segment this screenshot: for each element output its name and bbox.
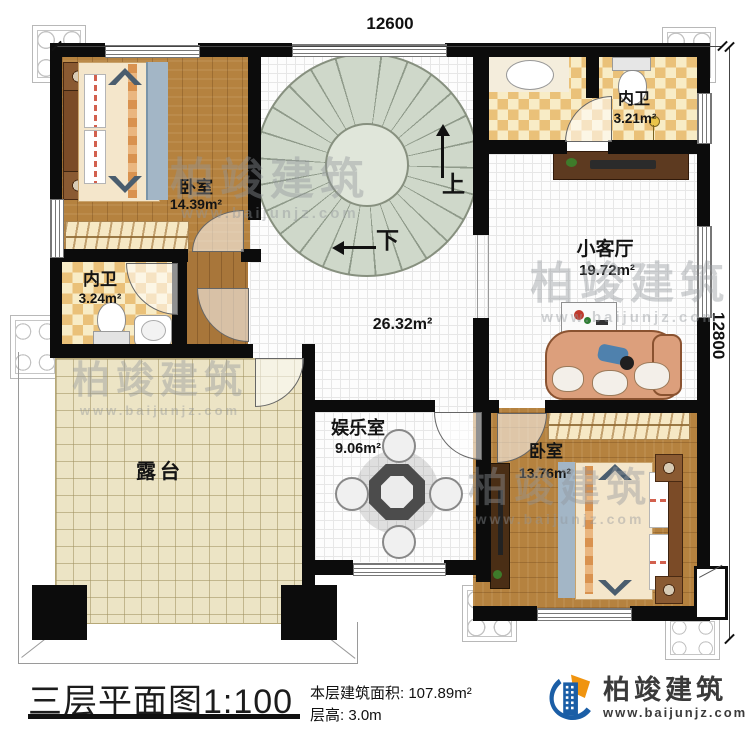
- wall: [608, 140, 697, 154]
- chair: [382, 525, 416, 559]
- dimension-right-label: 12800: [708, 312, 728, 392]
- wall: [586, 55, 599, 98]
- dimension-top-label: 12600: [350, 14, 430, 34]
- chair: [335, 477, 369, 511]
- brand-text: 柏竣建筑 www.baijunjz.com: [603, 676, 747, 721]
- flue-niche: [694, 566, 728, 620]
- tv: [498, 490, 503, 555]
- room-area-living-small: 19.72m²: [570, 263, 644, 280]
- window: [697, 226, 712, 318]
- wall: [545, 400, 710, 413]
- window: [353, 563, 446, 576]
- room-area-bedroom-top: 14.39m²: [157, 197, 235, 212]
- sink-basin: [141, 320, 166, 341]
- sofa-cushion: [592, 370, 628, 396]
- plant-icon: [566, 158, 577, 167]
- window: [537, 608, 632, 621]
- room-label-bedroom-top: 卧室: [163, 179, 229, 198]
- person-head: [620, 356, 634, 370]
- wall: [473, 606, 537, 621]
- wall: [697, 43, 710, 93]
- room-area-hall: 26.32m²: [360, 316, 445, 334]
- pillow: [84, 74, 106, 128]
- sink: [506, 60, 554, 90]
- brand-name: 柏竣建筑: [603, 676, 747, 706]
- wall-opening: [477, 235, 489, 318]
- stairs-up-arrowhead-icon: [436, 124, 450, 136]
- column-ornament-icon: [665, 616, 720, 660]
- wall: [697, 142, 710, 226]
- sofa-cushion: [634, 362, 670, 390]
- terrace-outline: [18, 663, 358, 664]
- wall: [302, 400, 435, 412]
- sofa-cushion: [552, 366, 584, 392]
- wall: [50, 344, 253, 358]
- wall: [302, 560, 353, 575]
- flue-line: [699, 565, 722, 578]
- room-label-bath-top: 内卫: [608, 91, 660, 109]
- wall: [241, 249, 261, 262]
- wall: [487, 140, 567, 154]
- wall: [55, 249, 188, 262]
- tv: [590, 160, 656, 169]
- wall: [473, 318, 489, 413]
- room-label-entertainment: 娱乐室: [322, 419, 394, 439]
- flowers-icon: [584, 317, 591, 324]
- stairs-down-arrow: [344, 246, 376, 249]
- plant-icon: [493, 570, 502, 579]
- flowers-icon: [574, 310, 584, 320]
- stairs-down-label: 下: [376, 228, 399, 253]
- room-area-bath-left: 3.24m²: [68, 292, 132, 307]
- wall: [302, 344, 315, 587]
- brand-website: www.baijunjz.com: [603, 705, 747, 720]
- room-label-terrace: 露台: [128, 461, 192, 483]
- toilet-tank: [612, 57, 651, 71]
- chair: [429, 477, 463, 511]
- terrace-outline: [357, 622, 358, 664]
- brand-logo: 柏竣建筑 www.baijunjz.com: [545, 670, 747, 726]
- dimension-line-right: [729, 47, 730, 639]
- window: [50, 199, 64, 258]
- dimension-line-top: [57, 46, 723, 47]
- room-area-bedroom-bottom: 13.76m²: [506, 466, 584, 481]
- wall: [50, 43, 62, 199]
- floor-area-text: 本层建筑面积: 107.89m²: [310, 682, 472, 703]
- bed-runner: [585, 466, 593, 594]
- column: [281, 585, 337, 640]
- nightstand: [655, 576, 683, 604]
- nightstand: [655, 454, 683, 482]
- spiral-staircase-center: [325, 123, 409, 207]
- stairs-down-arrowhead-icon: [332, 241, 344, 255]
- pillow: [84, 130, 106, 184]
- remote: [596, 320, 608, 325]
- wall: [473, 43, 489, 235]
- wall: [50, 255, 62, 352]
- terrace-outline: [18, 352, 19, 664]
- wall: [248, 43, 261, 220]
- room-label-bedroom-bottom: 卧室: [516, 443, 576, 462]
- floor-height-text: 层高: 3.0m: [310, 704, 382, 725]
- room-area-bath-top: 3.21m²: [604, 112, 666, 127]
- room-area-entertainment: 9.06m²: [322, 442, 394, 458]
- window: [697, 93, 712, 144]
- column: [32, 585, 87, 640]
- wall: [444, 560, 490, 575]
- stairs-up-label: 上: [442, 172, 465, 197]
- plan-title-underline: [28, 714, 300, 719]
- floor-plan: 上 下: [0, 0, 750, 738]
- room-label-living-small: 小客厅: [568, 240, 642, 261]
- brand-logo-icon: [545, 670, 597, 726]
- wardrobe: [548, 410, 690, 440]
- room-label-bath-left: 内卫: [72, 271, 128, 290]
